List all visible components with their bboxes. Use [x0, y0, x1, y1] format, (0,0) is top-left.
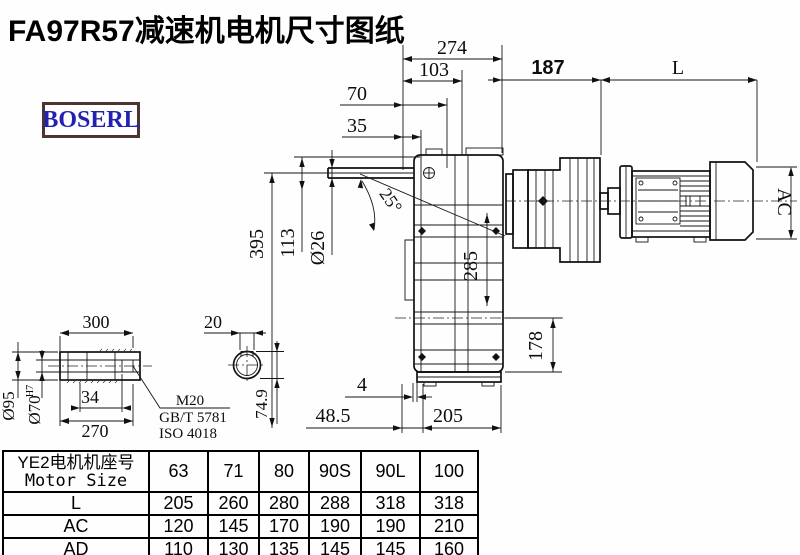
table-cell: 145	[208, 515, 259, 538]
dim-74_9: 74.9	[252, 389, 271, 419]
dim-iso4018: ISO 4018	[159, 426, 217, 442]
dim-395: 395	[246, 229, 268, 259]
table-row: AD 110 130 135 145 145 160	[3, 538, 478, 555]
dimension-drawing-page: FA97R57减速机电机尺寸图纸 BOSERL	[0, 0, 800, 555]
row-label: AD	[3, 538, 149, 555]
dim-103: 103	[419, 59, 449, 81]
motor-size-label-en: Motor Size	[4, 472, 148, 491]
dim-187: 187	[531, 57, 564, 79]
table-cell: 145	[361, 538, 420, 555]
dim-70h7-base: Ø70	[25, 395, 44, 424]
dim-70: 70	[347, 83, 367, 105]
table-cell: 318	[420, 492, 478, 515]
table-cell: 260	[208, 492, 259, 515]
dim-m20: M20	[176, 393, 204, 409]
dim-274: 274	[437, 37, 467, 59]
dim-26: Ø26	[307, 231, 329, 265]
dim-34: 34	[81, 387, 99, 407]
motor-side-view	[505, 162, 797, 242]
table-row: AC 120 145 170 190 190 210	[3, 515, 478, 538]
table-cell: 210	[420, 515, 478, 538]
dim-205: 205	[433, 405, 463, 427]
eyebolt-icon	[424, 168, 435, 179]
dim-gbt5781: GB/T 5781	[159, 410, 227, 426]
dim-285: 285	[460, 251, 482, 281]
table-cell: 71	[208, 451, 259, 492]
motor-size-header-cell: YE2电机机座号 Motor Size	[3, 451, 149, 492]
table-cell: 190	[361, 515, 420, 538]
dim-35: 35	[347, 115, 367, 137]
table-cell: 318	[361, 492, 420, 515]
row-label: L	[3, 492, 149, 515]
r57-gear-unit	[506, 158, 620, 262]
table-cell: 63	[149, 451, 208, 492]
table-cell: 190	[309, 515, 361, 538]
dim-270: 270	[82, 421, 109, 441]
hollow-shaft-detail-view: 300 270 34 Ø95 Ø70 H7	[0, 312, 230, 442]
table-cell: 205	[149, 492, 208, 515]
dim-4: 4	[357, 374, 367, 396]
dim-95: Ø95	[0, 391, 18, 420]
row-label: AC	[3, 515, 149, 538]
table-row: L 205 260 280 288 318 318	[3, 492, 478, 515]
table-cell: 160	[420, 538, 478, 555]
table-cell: 110	[149, 538, 208, 555]
table-cell: 120	[149, 515, 208, 538]
dim-L: L	[672, 57, 684, 79]
dim-178: 178	[525, 331, 547, 361]
dim-25deg: 25°	[375, 185, 406, 217]
table-cell: 170	[259, 515, 309, 538]
table-cell: 80	[259, 451, 309, 492]
table-cell: 130	[208, 538, 259, 555]
dim-AC: AC	[773, 188, 795, 216]
table-cell: 90S	[309, 451, 361, 492]
table-cell: 135	[259, 538, 309, 555]
dim-300: 300	[83, 312, 110, 332]
table-cell: 280	[259, 492, 309, 515]
dim-113: 113	[277, 228, 299, 257]
dim-70h7-sup: H7	[25, 385, 36, 397]
table-cell: 100	[420, 451, 478, 492]
dim-48_5: 48.5	[316, 405, 351, 427]
table-cell: 288	[309, 492, 361, 515]
dimension-annotations-main: 274 103 70 35 187 L AC	[246, 37, 797, 433]
table-header-row: YE2电机机座号 Motor Size 63 71 80 90S 90L 100	[3, 451, 478, 492]
technical-drawing: 274 103 70 35 187 L AC	[0, 0, 800, 452]
motor-size-label-cn: YE2电机机座号	[4, 453, 148, 472]
table-cell: 90L	[361, 451, 420, 492]
dim-20: 20	[204, 312, 222, 332]
motor-size-table: YE2电机机座号 Motor Size 63 71 80 90S 90L 100…	[2, 450, 479, 555]
table-cell: 145	[309, 538, 361, 555]
